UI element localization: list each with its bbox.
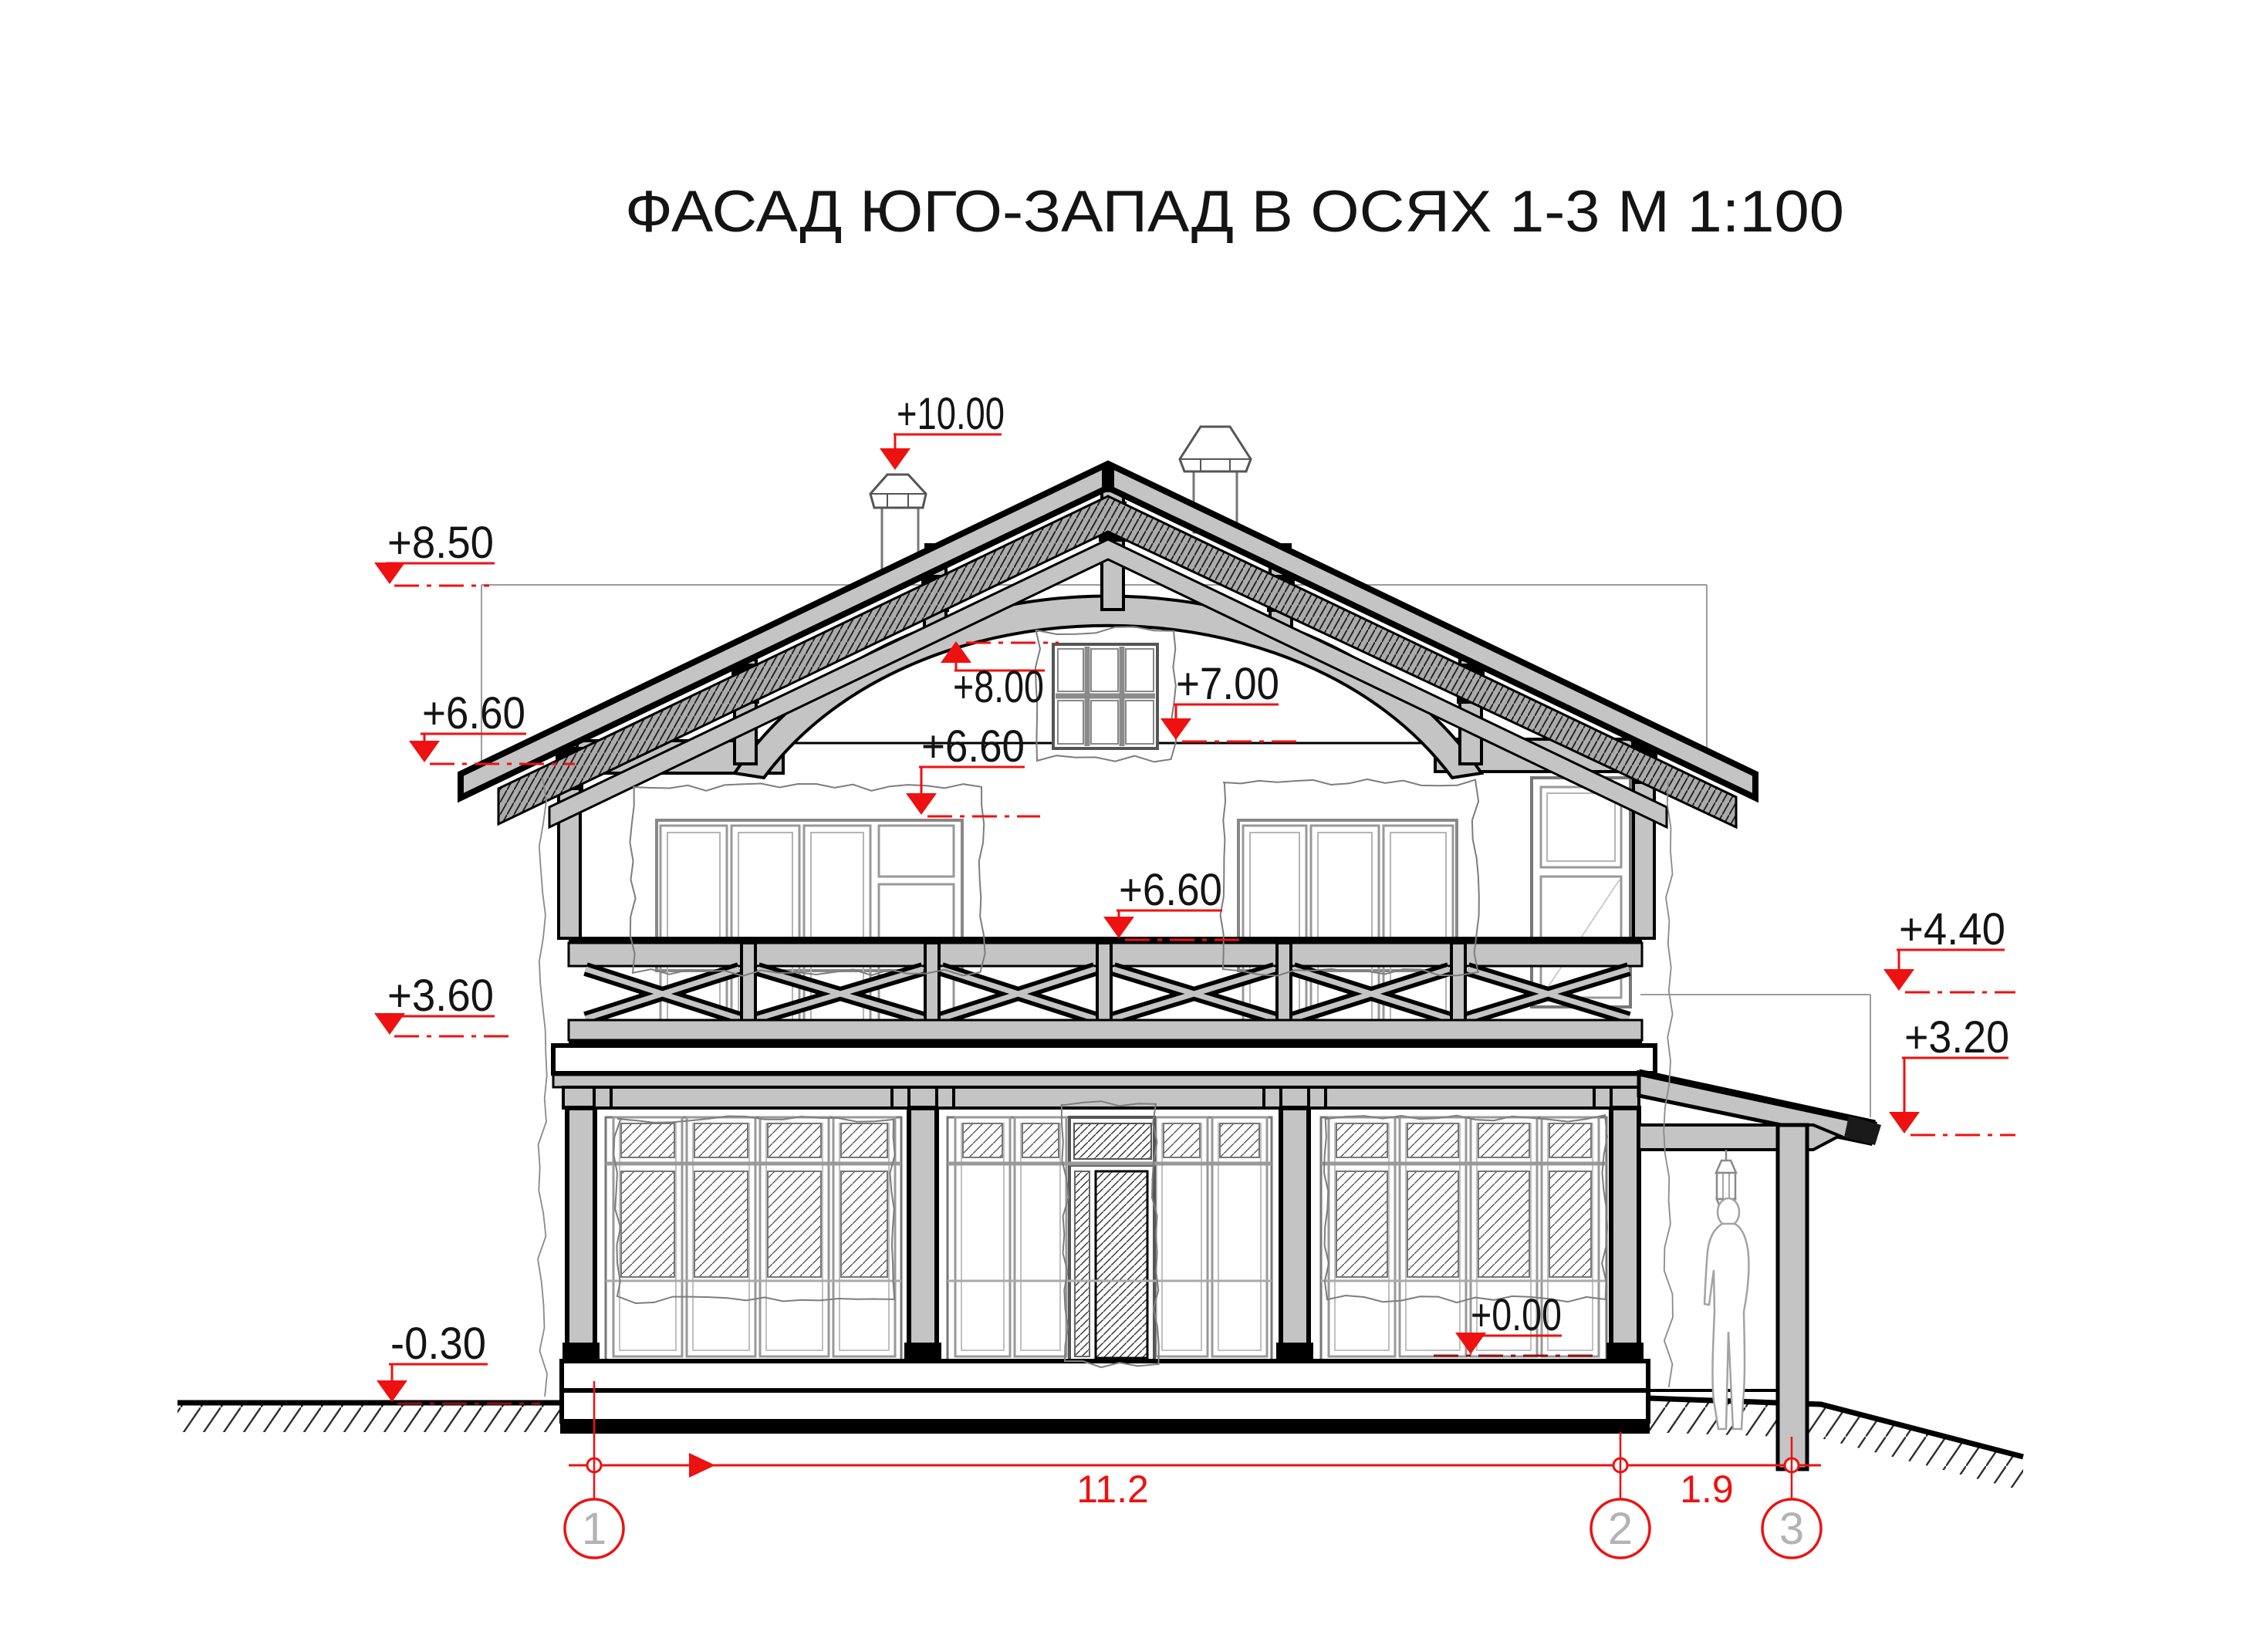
dimension-value: 1.9 [1680,1468,1734,1511]
facade-elevation-drawing: +10.00+8.50+8.00+7.00+6.60+6.60+6.60+4.4… [0,0,2250,1652]
plinth [560,1361,1650,1434]
level-arrow [1889,1112,1920,1133]
elevation-marker-+8.00: +8.00 [941,641,1059,712]
level-arrow [1883,969,1914,991]
first-floor-glazing [606,1117,1606,1361]
lintel-beam [563,1087,1639,1108]
elevation-marker-+4.40: +4.40 [1883,904,2015,992]
porch-column [1778,1125,1807,1469]
axis-number: 1 [582,1504,606,1554]
elevation-value: +6.60 [1119,865,1222,915]
elevation-value: +10.00 [897,389,1005,439]
ridge-joint [1102,466,1114,492]
elevation-value: +8.50 [387,518,494,568]
elevation-marker-+3.60: +3.60 [374,971,515,1036]
elevation-value: -0.30 [390,1319,486,1369]
first-floor [560,1087,1650,1434]
elevation-value: +7.00 [1176,659,1279,709]
elevation-value: +6.60 [921,721,1025,772]
elevation-value: +6.60 [422,688,525,738]
elevation-marker-+8.50: +8.50 [374,518,495,586]
axis-number: 3 [1779,1504,1804,1554]
elevation-value: +4.40 [1899,904,2005,954]
level-arrow [1160,718,1191,740]
axis-bubble-2: 2 [1591,1432,1650,1558]
elevation-marker-+10.00: +10.00 [880,389,1005,470]
elevation-marker-+7.00: +7.00 [1160,659,1302,742]
level-arrow [880,448,910,470]
attic-window [1053,644,1157,748]
elevation-value: +3.20 [1904,1012,2009,1062]
level-arrow [377,1380,407,1402]
level-arrow [409,741,440,762]
porch-beam [1639,1125,1840,1150]
dimension-value: 11.2 [1076,1468,1149,1511]
direction-arrow [689,1453,715,1478]
elevation-marker-+3.20: +3.20 [1889,1012,2015,1135]
elevation-value: +3.60 [387,971,494,1021]
axis-bubble-3: 3 [1762,1437,1821,1558]
level-arrow [1103,917,1134,938]
balcony-railing [553,937,1655,1087]
drawing-title: ФАСАД ЮГО-ЗАПАД В ОСЯХ 1-3 М 1:100 [625,179,1844,245]
level-arrow [906,793,937,815]
elevation-marker-+6.60: +6.60 [906,721,1040,816]
elevation-marker--0.30: -0.30 [377,1319,540,1404]
axis-number: 2 [1608,1504,1633,1554]
elevation-value: +0.00 [1471,1290,1562,1340]
human-figure [1704,1198,1748,1429]
elevation-value: +8.00 [953,662,1044,712]
